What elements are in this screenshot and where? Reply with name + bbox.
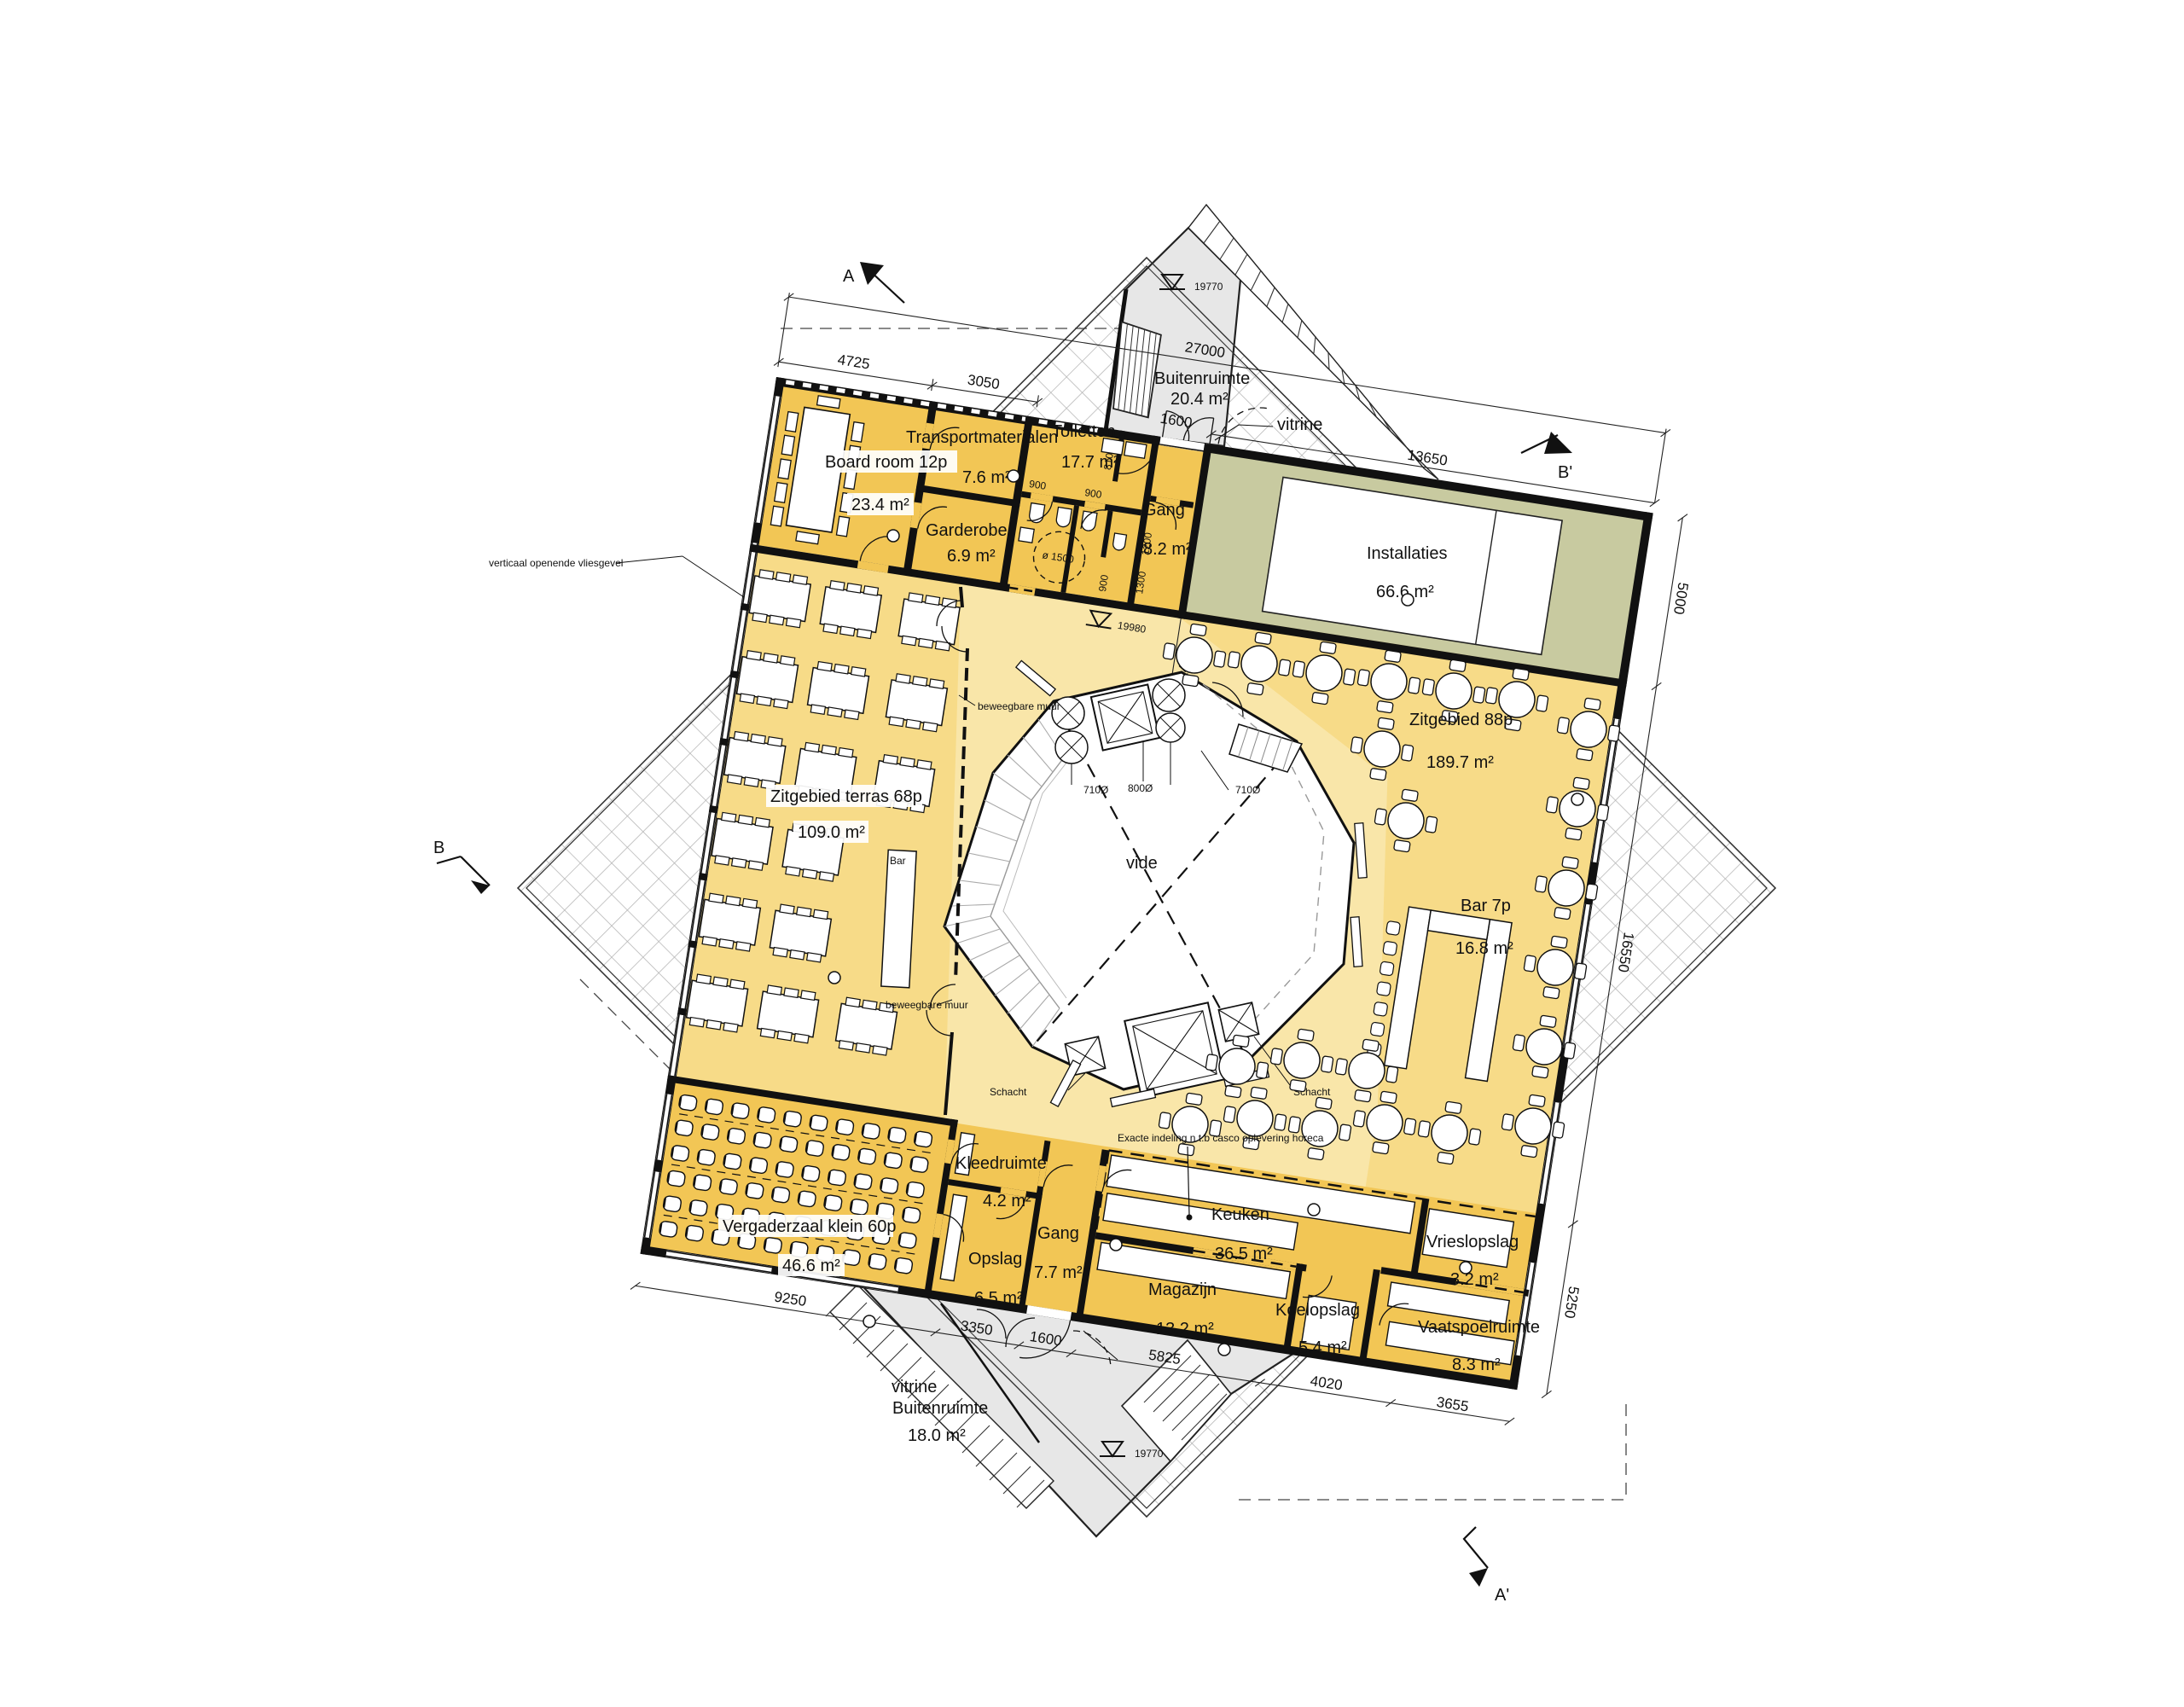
- svg-text:710Ø: 710Ø: [1083, 784, 1108, 796]
- svg-text:Schacht: Schacht: [990, 1086, 1027, 1098]
- svg-text:189.7 m²: 189.7 m²: [1426, 753, 1494, 772]
- svg-text:A': A': [1495, 1586, 1509, 1605]
- svg-text:16.8 m²: 16.8 m²: [1455, 939, 1513, 958]
- svg-text:vide: vide: [1126, 854, 1158, 873]
- svg-text:Kleedruimte: Kleedruimte: [955, 1154, 1047, 1173]
- svg-text:18.0 m²: 18.0 m²: [908, 1426, 966, 1445]
- svg-text:vitrine: vitrine: [1277, 415, 1322, 434]
- svg-text:beweegbare muur: beweegbare muur: [886, 999, 968, 1011]
- svg-text:Gang: Gang: [1143, 501, 1185, 520]
- svg-text:20.4 m²: 20.4 m²: [1170, 390, 1228, 409]
- svg-text:5.4 m²: 5.4 m²: [1298, 1338, 1347, 1357]
- svg-text:Vergaderzaal klein 60p: Vergaderzaal klein 60p: [723, 1217, 896, 1236]
- svg-text:13.2 m²: 13.2 m²: [1156, 1320, 1214, 1338]
- svg-text:Zitgebied 88p: Zitgebied 88p: [1409, 711, 1513, 729]
- svg-text:Transportmaterialen: Transportmaterialen: [906, 428, 1058, 447]
- svg-text:Toiletten: Toiletten: [1052, 422, 1116, 441]
- svg-text:Buitenruimte: Buitenruimte: [892, 1399, 988, 1418]
- svg-text:A: A: [843, 267, 855, 286]
- svg-text:Vaatspoelruimte: Vaatspoelruimte: [1418, 1318, 1540, 1337]
- svg-text:7.6 m²: 7.6 m²: [962, 468, 1011, 487]
- svg-text:vitrine: vitrine: [892, 1378, 937, 1396]
- svg-text:8.2 m²: 8.2 m²: [1143, 540, 1192, 559]
- svg-text:Opslag: Opslag: [968, 1250, 1022, 1269]
- svg-text:4.2 m²: 4.2 m²: [983, 1192, 1031, 1211]
- svg-text:Board room 12p: Board room 12p: [825, 453, 947, 472]
- svg-text:Installaties: Installaties: [1367, 544, 1448, 563]
- svg-text:B: B: [433, 839, 444, 857]
- svg-text:verticaal openende vliesgevel: verticaal openende vliesgevel: [489, 557, 623, 569]
- svg-text:Buitenruimte: Buitenruimte: [1154, 369, 1250, 388]
- svg-text:710Ø: 710Ø: [1235, 784, 1260, 796]
- svg-text:beweegbare muur: beweegbare muur: [978, 700, 1060, 712]
- svg-text:Zitgebied terras 68p: Zitgebied terras 68p: [770, 787, 922, 806]
- svg-text:Bar: Bar: [890, 855, 906, 867]
- svg-text:Koelopslag: Koelopslag: [1275, 1301, 1360, 1320]
- svg-text:Bar 7p: Bar 7p: [1461, 897, 1511, 915]
- svg-text:Keuken: Keuken: [1211, 1205, 1269, 1224]
- svg-text:Exacte indeling n.t.b casco op: Exacte indeling n.t.b casco oplevering h…: [1118, 1132, 1324, 1144]
- svg-text:Garderobe: Garderobe: [926, 521, 1008, 540]
- svg-text:800Ø: 800Ø: [1128, 782, 1153, 794]
- svg-text:Vrieslopslag: Vrieslopslag: [1426, 1233, 1519, 1251]
- svg-text:7.7 m²: 7.7 m²: [1034, 1263, 1083, 1282]
- svg-text:109.0 m²: 109.0 m²: [798, 823, 865, 842]
- svg-text:23.4 m²: 23.4 m²: [851, 496, 909, 514]
- svg-text:6.9 m²: 6.9 m²: [947, 547, 996, 566]
- svg-text:B': B': [1558, 463, 1572, 482]
- svg-text:8.3 m²: 8.3 m²: [1452, 1356, 1501, 1374]
- svg-text:6.5 m²: 6.5 m²: [974, 1289, 1023, 1308]
- svg-text:36.5 m²: 36.5 m²: [1215, 1245, 1273, 1263]
- svg-text:Gang: Gang: [1037, 1224, 1079, 1243]
- svg-text:46.6 m²: 46.6 m²: [782, 1257, 840, 1275]
- svg-text:19770: 19770: [1135, 1448, 1164, 1460]
- svg-text:17.7 m²: 17.7 m²: [1061, 453, 1119, 472]
- svg-text:3.2 m²: 3.2 m²: [1450, 1270, 1499, 1289]
- svg-text:19770: 19770: [1194, 281, 1223, 293]
- svg-text:Magazijn: Magazijn: [1148, 1280, 1217, 1299]
